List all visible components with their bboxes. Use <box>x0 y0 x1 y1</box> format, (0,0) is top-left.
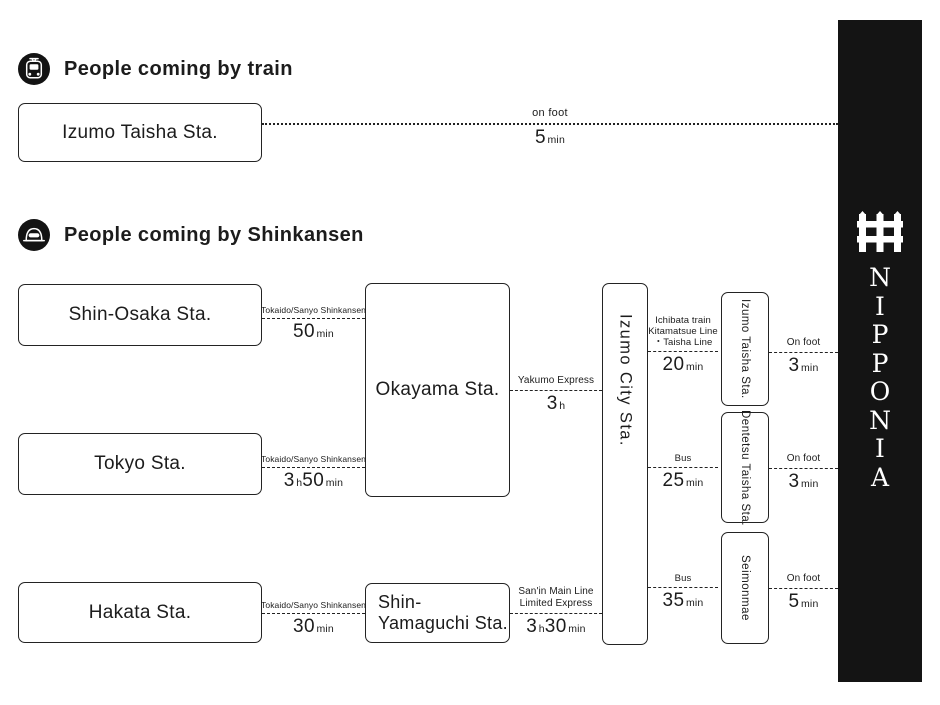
station-box-shin-yamaguchi: Shin- Yamaguchi Sta. <box>365 583 510 643</box>
route-izumocity-seimonmae: Bus 35min <box>648 573 718 612</box>
shinkansen-section-header: People coming by Shinkansen <box>18 219 364 251</box>
route-time: 3h30min <box>526 616 585 638</box>
shinkansen-icon <box>18 219 50 251</box>
route-time: 3h <box>547 393 566 415</box>
access-diagram: People coming by train Izumo Taisha Sta.… <box>0 0 940 705</box>
route-time: 3min <box>789 471 819 493</box>
dashed-route-line <box>648 467 718 468</box>
train-section-header: People coming by train <box>18 53 293 85</box>
gate-logo-icon <box>857 210 903 252</box>
route-shinyamaguchi-izumocity: San'in Main Line Limited Express 3h30min <box>510 586 602 638</box>
route-method-label: On foot <box>787 337 821 349</box>
shinkansen-section-title: People coming by Shinkansen <box>64 224 364 247</box>
route-izumocity-izumotaisha: Ichibata train Kitamatsue Line ・Taisha L… <box>648 315 718 376</box>
dotted-route-line <box>262 123 838 125</box>
route-method-label: Bus <box>675 573 692 584</box>
route-method-label-3: ・Taisha Line <box>654 337 713 348</box>
dashed-route-line <box>262 613 365 614</box>
dashed-route-line <box>769 588 838 589</box>
route-time: 50min <box>293 321 334 343</box>
route-dentetsu-nipponia: On foot 3min <box>769 453 838 493</box>
route-tokyo-okayama: Tokaido/Sanyo Shinkansen 3h50min <box>262 454 365 492</box>
station-label: Izumo Taisha Sta. <box>62 122 218 144</box>
nipponia-destination-bar: N I P P O N I A <box>838 20 922 682</box>
route-time: 20min <box>663 354 704 376</box>
route-time: 3min <box>789 355 819 377</box>
dashed-route-line <box>510 613 602 614</box>
station-label: Tokyo Sta. <box>94 453 186 475</box>
route-method-label: Tokaido/Sanyo Shinkansen <box>261 454 366 464</box>
station-box-shin-osaka: Shin-Osaka Sta. <box>18 284 262 346</box>
train-icon <box>18 53 50 85</box>
station-label: Shin- Yamaguchi Sta. <box>378 592 508 634</box>
route-shinosaka-okayama: Tokaido/Sanyo Shinkansen 50min <box>262 305 365 343</box>
dashed-route-line <box>648 587 718 588</box>
route-time: 5min <box>535 127 565 149</box>
station-box-dentetsu-taisha: Dentetsu Taisha Sta. <box>721 412 769 523</box>
route-time: 30min <box>293 616 334 638</box>
route-method-label: Ichibata train <box>655 315 711 326</box>
station-box-seimonmae: Seimonmae <box>721 532 769 644</box>
dashed-route-line <box>769 352 838 353</box>
route-method-label-2: Kitamatsue Line <box>648 326 718 337</box>
station-box-izumo-taisha-train: Izumo Taisha Sta. <box>18 103 262 162</box>
station-box-okayama: Okayama Sta. <box>365 283 510 497</box>
station-label: Seimonmae <box>739 555 751 621</box>
route-method-label: Yakumo Express <box>518 375 594 387</box>
station-label: Izumo Taisha Sta. <box>739 299 751 399</box>
nipponia-wordmark: N I P P O N I A <box>869 264 891 492</box>
route-seimonmae-nipponia: On foot 5min <box>769 573 838 613</box>
station-box-izumo-city: Izumo City Sta. <box>602 283 648 645</box>
route-izumocity-dentetsu: Bus 25min <box>648 453 718 492</box>
station-box-hakata: Hakata Sta. <box>18 582 262 643</box>
dashed-route-line <box>648 351 718 352</box>
route-time: 5min <box>789 591 819 613</box>
station-label: Okayama Sta. <box>376 379 500 401</box>
station-label: Shin-Osaka Sta. <box>69 304 212 326</box>
station-label: Hakata Sta. <box>89 602 192 624</box>
route-method-label: On foot <box>787 573 821 585</box>
route-method-label: San'in Main Line <box>518 586 593 598</box>
route-time: 35min <box>663 590 704 612</box>
route-method-label: Bus <box>675 453 692 464</box>
route-okayama-izumocity: Yakumo Express 3h <box>510 375 602 415</box>
route-time: 25min <box>663 470 704 492</box>
route-method-label: Tokaido/Sanyo Shinkansen <box>261 305 366 315</box>
station-label: Izumo City Sta. <box>616 314 635 447</box>
route-method-label: On foot <box>787 453 821 465</box>
route-train-onfoot: on foot 5min <box>262 107 838 149</box>
route-time: 3h50min <box>284 470 343 492</box>
station-label: Dentetsu Taisha Sta. <box>739 410 751 526</box>
route-hakata-shinyamaguchi: Tokaido/Sanyo Shinkansen 30min <box>262 600 365 638</box>
route-method-label: on foot <box>532 107 568 120</box>
dashed-route-line <box>510 390 602 391</box>
station-box-izumo-taisha-vertical: Izumo Taisha Sta. <box>721 292 769 406</box>
train-section-title: People coming by train <box>64 58 293 81</box>
dashed-route-line <box>262 467 365 468</box>
route-method-label: Tokaido/Sanyo Shinkansen <box>261 600 366 610</box>
station-box-tokyo: Tokyo Sta. <box>18 433 262 495</box>
route-method-label-2: Limited Express <box>520 598 593 610</box>
dashed-route-line <box>262 318 365 319</box>
route-izumotaisha-nipponia: On foot 3min <box>769 337 838 377</box>
dashed-route-line <box>769 468 838 469</box>
